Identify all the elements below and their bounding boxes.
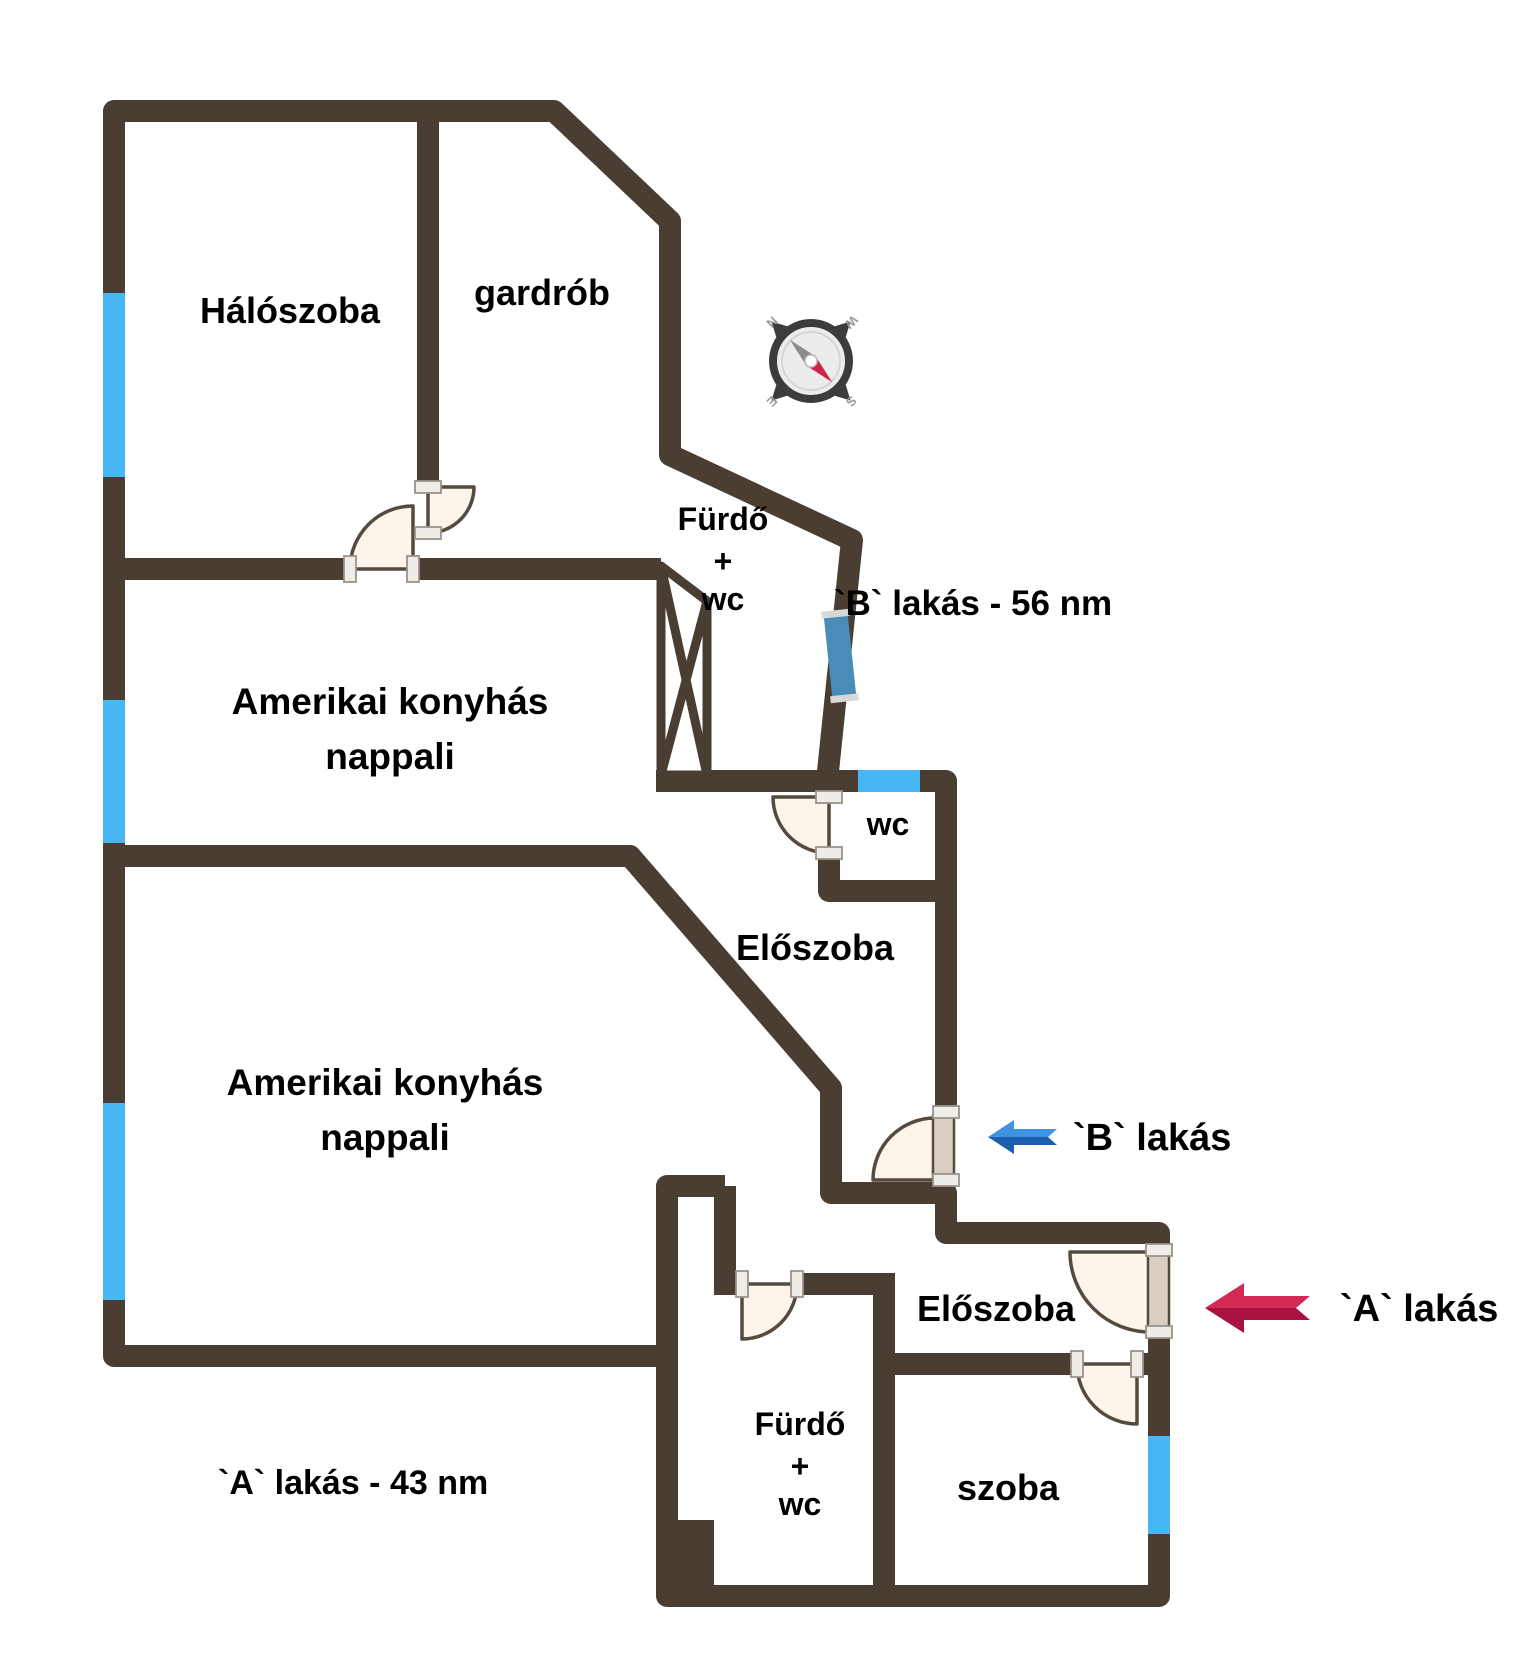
- label-bath-a-3: wc: [778, 1486, 822, 1522]
- window-room-a: [1148, 1436, 1170, 1534]
- label-living-b-2: nappali: [325, 736, 455, 777]
- label-living-a-1: Amerikai konyhás: [227, 1062, 544, 1103]
- floorplan-canvas: N E S W Hálószoba gardrób Fürdő + wc wc …: [0, 0, 1520, 1680]
- label-wc-b: wc: [866, 806, 910, 842]
- label-bath-a-2: +: [791, 1448, 810, 1484]
- light-shaft: [661, 566, 707, 775]
- door-wc-b: [773, 797, 829, 853]
- window-living-b: [103, 700, 125, 843]
- compass: N E S W: [724, 273, 901, 450]
- label-bedroom: Hálószoba: [200, 290, 381, 331]
- door-entrance-a: [1070, 1252, 1150, 1332]
- label-entrance-b: `B` lakás: [1073, 1117, 1231, 1159]
- label-room-a: szoba: [957, 1467, 1060, 1508]
- door-leaf-entrance-b: [933, 1116, 954, 1180]
- label-hall-b: Előszoba: [736, 927, 895, 968]
- door-bedroom: [350, 506, 413, 569]
- floorplan-page: N E S W Hálószoba gardrób Fürdő + wc wc …: [0, 0, 1520, 1680]
- label-living-a-2: nappali: [320, 1117, 450, 1158]
- door-leaf-entrance-a: [1148, 1250, 1169, 1334]
- label-entrance-a: `A` lakás: [1340, 1288, 1498, 1330]
- walls: [114, 111, 1170, 1596]
- door-room-a: [1077, 1364, 1137, 1424]
- window-bedroom: [103, 293, 125, 477]
- door-bath-a: [742, 1284, 797, 1339]
- wall-corridor-diagonal: [114, 856, 1159, 1252]
- label-bath-b-3: wc: [701, 581, 745, 617]
- label-bath-b-1: Fürdő: [678, 501, 769, 537]
- window-wc-b: [858, 770, 920, 792]
- label-wardrobe: gardrób: [474, 272, 610, 313]
- wall-bedroom-divider: [114, 122, 661, 569]
- label-apartment-a-area: `A` lakás - 43 nm: [218, 1464, 488, 1502]
- label-living-b-1: Amerikai konyhás: [232, 681, 549, 722]
- label-bath-a-1: Fürdő: [755, 1406, 846, 1442]
- entrance-arrow-b: [988, 1120, 1057, 1154]
- window-living-a: [103, 1103, 125, 1300]
- door-entrance-b: [873, 1118, 935, 1180]
- label-bath-b-2: +: [714, 543, 733, 579]
- label-hall-a: Előszoba: [917, 1288, 1076, 1329]
- wall-slot-closure: [678, 1520, 714, 1596]
- entrance-arrow-a: [1205, 1283, 1310, 1333]
- label-apartment-b-area: `B` lakás - 56 nm: [834, 584, 1112, 623]
